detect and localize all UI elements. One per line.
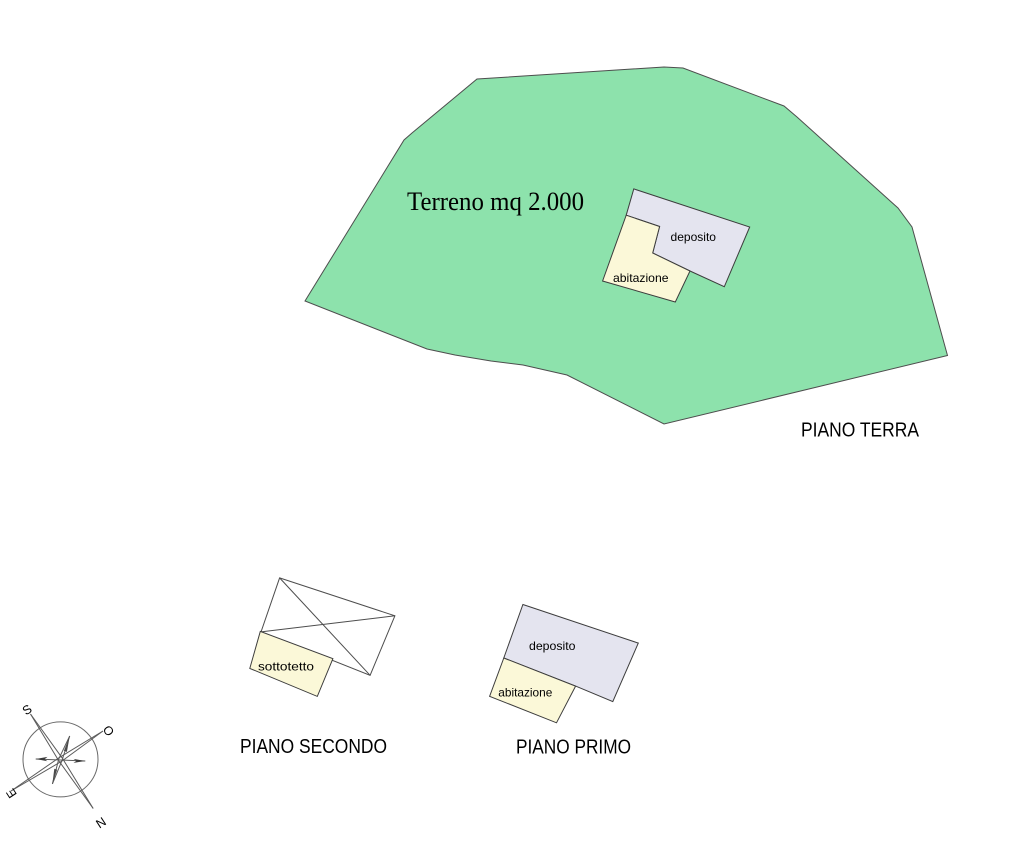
svg-text:deposito: deposito [529, 639, 576, 653]
svg-text:PIANO SECONDO: PIANO SECONDO [240, 735, 387, 758]
svg-text:PIANO TERRA: PIANO TERRA [801, 418, 919, 441]
svg-text:sottotetto: sottotetto [258, 660, 314, 674]
svg-text:abitazione: abitazione [498, 685, 552, 699]
svg-text:abitazione: abitazione [613, 271, 669, 285]
svg-text:Terreno mq 2.000: Terreno mq 2.000 [407, 186, 584, 216]
svg-text:deposito: deposito [671, 230, 717, 244]
svg-text:PIANO PRIMO: PIANO PRIMO [516, 735, 631, 758]
